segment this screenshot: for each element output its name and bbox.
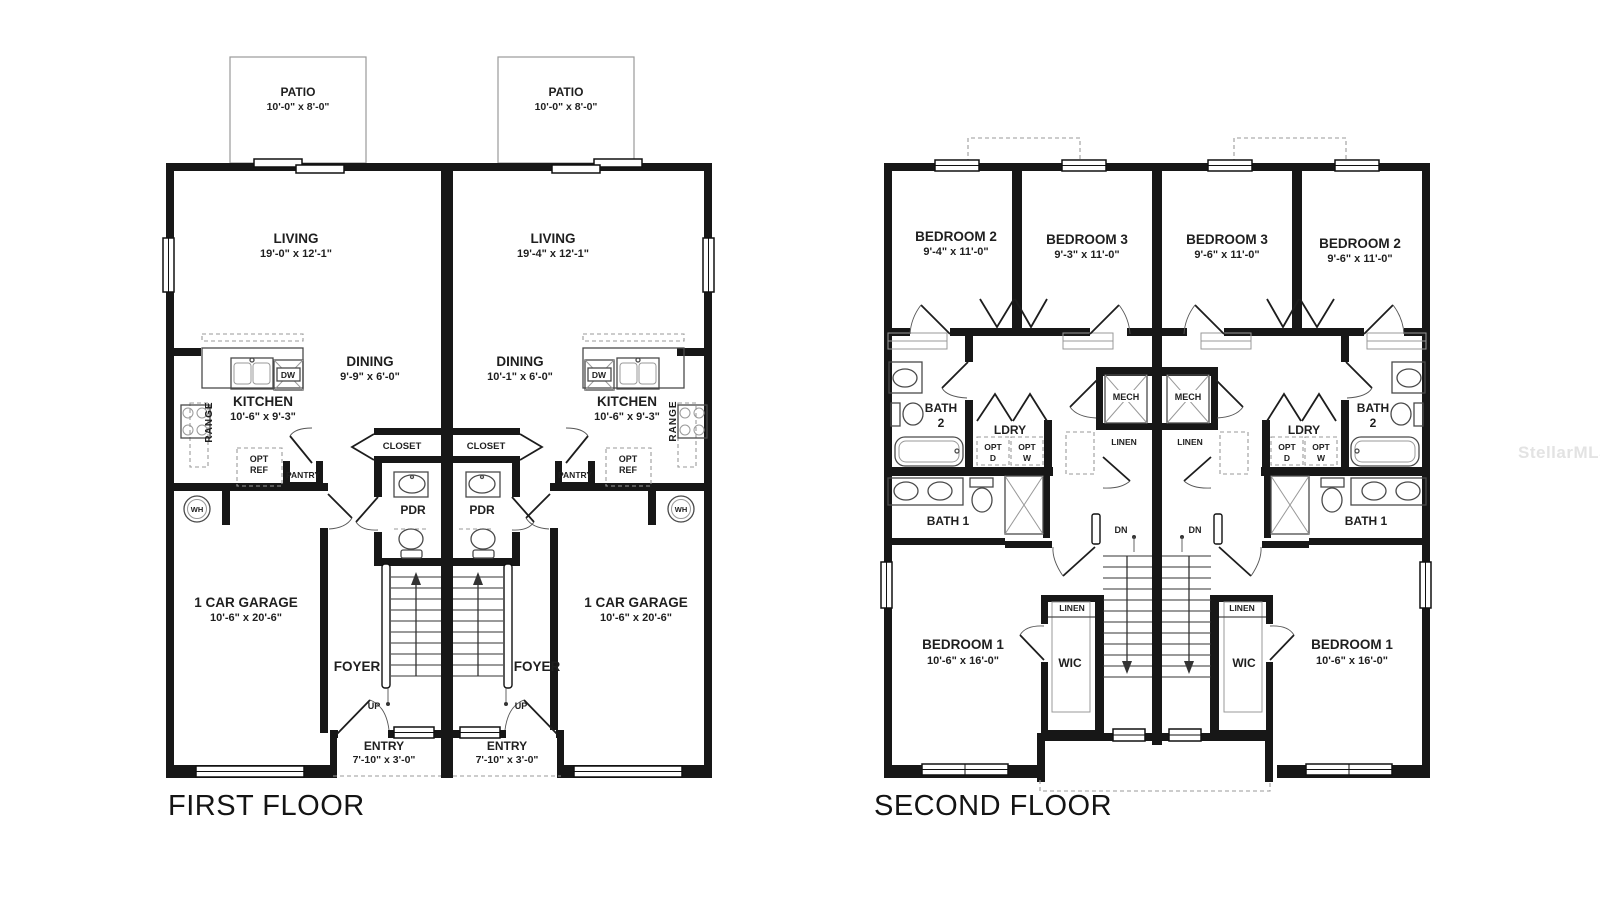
pantry-label: PANTRY <box>558 470 592 480</box>
linen-label: LINEN <box>1177 437 1203 447</box>
faucet-icon <box>1355 449 1359 453</box>
lav-sink <box>928 482 952 500</box>
door-leaf <box>566 436 588 463</box>
door-swing <box>356 522 378 530</box>
range-label: RANGE <box>668 400 679 441</box>
burner-icon <box>680 425 690 435</box>
bedroom3-window <box>1208 160 1252 171</box>
bedroom2-dims: 9'-6" x 11'-0" <box>1327 253 1392 265</box>
toilet <box>399 529 423 549</box>
toilet-tank <box>1414 403 1423 426</box>
patio-slider-right <box>594 159 642 167</box>
bedroom1-dims: 10'-6" x 16'-0" <box>927 655 999 667</box>
toilet <box>471 529 495 549</box>
door-swing <box>329 518 352 529</box>
door-swing <box>290 428 312 436</box>
up-arrow-head <box>411 572 421 585</box>
doors-first-floor <box>290 428 588 734</box>
toilet <box>903 403 923 425</box>
roof-outline <box>968 138 1346 163</box>
laundry-bifold <box>1267 394 1336 421</box>
opt-d-label: OPT <box>984 442 1002 452</box>
garage-dims: 10'-6" x 20'-6" <box>600 612 672 624</box>
opt-d-label: OPT <box>1278 442 1296 452</box>
opt-ref-label: REF <box>250 465 269 475</box>
linen-label: LINEN <box>1059 603 1085 613</box>
door-swing <box>526 518 549 529</box>
garage-label: 1 CAR GARAGE <box>194 595 298 610</box>
patio-slider-right-2 <box>552 165 600 173</box>
garage-door-left <box>196 766 304 777</box>
door-swing <box>566 428 588 436</box>
toilet-tank <box>891 403 900 426</box>
patio-dims: 10'-0" x 8'-0" <box>535 101 598 113</box>
opt-w-label: W <box>1023 453 1032 463</box>
sink-basin <box>234 363 251 384</box>
entry-dims: 7'-10" x 3'-0" <box>353 754 416 766</box>
up-label: UP <box>368 701 381 711</box>
porch-window <box>1113 729 1145 741</box>
sink-basin <box>620 363 637 384</box>
toilet <box>1322 488 1342 512</box>
bedroom3-dims: 9'-3" x 11'-0" <box>1054 249 1119 261</box>
bedroom3-label: BEDROOM 3 <box>1186 232 1268 247</box>
entry-door-leaf <box>337 700 370 734</box>
dn-arrow-head <box>1184 661 1194 674</box>
bedroom2-label: BEDROOM 2 <box>1319 236 1401 251</box>
bedroom1-window <box>922 764 1008 775</box>
faucet-icon <box>481 476 484 479</box>
kitchen-label: KITCHEN <box>233 394 293 409</box>
wic-label: WIC <box>1232 656 1256 670</box>
dining-label: DINING <box>496 354 543 369</box>
bathtub-inner <box>899 441 959 462</box>
kitchen-right <box>583 334 707 486</box>
kitchen-label: KITCHEN <box>597 394 657 409</box>
bedroom2-window <box>935 160 979 171</box>
toilet-base <box>401 550 422 558</box>
lav-sink <box>1362 482 1386 500</box>
dn-label: DN <box>1189 525 1202 535</box>
dining-dims: 9'-9" x 6'-0" <box>340 371 400 383</box>
bedroom3-label: BEDROOM 3 <box>1046 232 1128 247</box>
door-leaf <box>356 497 378 522</box>
burner-icon <box>183 425 193 435</box>
opt-w-label: OPT <box>1018 442 1036 452</box>
opt-w-label: OPT <box>1312 442 1330 452</box>
first-floor-plan: PATIO 10'-0" x 8'-0" PATIO 10'-0" x 8'-0… <box>163 57 714 778</box>
linen-label: LINEN <box>1111 437 1137 447</box>
dining-label: DINING <box>346 354 393 369</box>
bedroom1-side-window <box>881 562 892 608</box>
toilet-base <box>473 550 494 558</box>
bedroom3-dims: 9'-6" x 11'-0" <box>1194 249 1259 261</box>
bathtub-inner <box>1355 441 1415 462</box>
floor-plan-drawing: PATIO 10'-0" x 8'-0" PATIO 10'-0" x 8'-0… <box>0 0 1600 899</box>
first-floor-title: FIRST FLOOR <box>168 790 365 822</box>
mech-label: MECH <box>1175 392 1202 402</box>
pdr-label: PDR <box>469 503 495 517</box>
watermark: StellarMLS <box>1518 443 1600 462</box>
foyer-label: FOYER <box>514 659 561 674</box>
mech-label: MECH <box>1113 392 1140 402</box>
bath1-label: BATH 1 <box>1345 514 1388 528</box>
entry-door-opening-left <box>338 730 388 738</box>
bath2-label: BATH <box>1357 401 1389 415</box>
garage-label: 1 CAR GARAGE <box>584 595 688 610</box>
dn-arrow-head <box>1122 661 1132 674</box>
shower-hatch <box>1271 476 1309 534</box>
foyer-window-left <box>394 727 434 738</box>
pdr-label: PDR <box>400 503 426 517</box>
living-dims: 19'-4" x 12'-1" <box>517 248 589 260</box>
burner-icon <box>183 408 193 418</box>
lav-sink <box>1397 369 1421 387</box>
lav-sink <box>893 369 917 387</box>
up-arrow-head <box>473 572 483 585</box>
bath2-label: 2 <box>938 416 945 430</box>
attic-access <box>1220 432 1248 474</box>
door-leaf <box>526 494 550 518</box>
dn-label: DN <box>1115 525 1128 535</box>
toilet <box>972 488 992 512</box>
range-label: RANGE <box>204 401 215 442</box>
bath2-label: BATH <box>925 401 957 415</box>
dw-label: DW <box>281 370 296 380</box>
foyer-label: FOYER <box>334 659 381 674</box>
closet-bifold <box>520 434 542 460</box>
dw-label: DW <box>592 370 607 380</box>
floor-plan-sheet: PATIO 10'-0" x 8'-0" PATIO 10'-0" x 8'-0… <box>0 0 1600 899</box>
opt-d-label: D <box>1284 453 1290 463</box>
bedroom1-window <box>1306 764 1392 775</box>
opt-ref-label: OPT <box>250 454 269 464</box>
entry-label: ENTRY <box>487 739 527 753</box>
attic-access <box>1066 432 1094 474</box>
kitchen-dims: 10'-6" x 9'-3" <box>230 411 296 423</box>
up-leader-dot <box>386 702 390 706</box>
toilet-tank <box>1321 478 1344 487</box>
toilet <box>1391 403 1411 425</box>
bedroom1-label: BEDROOM 1 <box>922 637 1004 652</box>
stair-rail <box>504 564 512 688</box>
foyer-window-right <box>460 727 500 738</box>
bedroom2-dims: 9'-4" x 11'-0" <box>923 246 988 258</box>
bath2-label: 2 <box>1370 416 1377 430</box>
closet-bifold <box>352 434 374 460</box>
door-leaf <box>512 497 534 522</box>
pantry-label: PANTRY <box>286 470 320 480</box>
shower-hatch <box>1005 476 1043 534</box>
faucet-icon <box>411 476 414 479</box>
sink-basin <box>253 363 270 384</box>
patio-dims: 10'-0" x 8'-0" <box>267 101 330 113</box>
kitchen-dims: 10'-6" x 9'-3" <box>594 411 660 423</box>
door-leaf <box>328 494 352 518</box>
bedroom1-dims: 10'-6" x 16'-0" <box>1316 655 1388 667</box>
closet-label: CLOSET <box>467 441 506 452</box>
porch-window <box>1169 729 1201 741</box>
wh-label: WH <box>191 505 204 514</box>
lav-sink <box>894 482 918 500</box>
living-window-left <box>163 238 174 292</box>
second-floor-title: SECOND FLOOR <box>874 790 1112 822</box>
stair-treads <box>1162 556 1211 677</box>
patio-label: PATIO <box>281 85 316 99</box>
living-label: LIVING <box>273 231 318 246</box>
closet-label: CLOSET <box>383 441 422 452</box>
living-window-right <box>703 238 714 292</box>
laundry-label: LDRY <box>994 423 1026 437</box>
dining-dims: 10'-1" x 6'-0" <box>487 371 553 383</box>
bedroom1-side-window <box>1420 562 1431 608</box>
faucet-icon <box>636 358 640 362</box>
opt-ref-label: OPT <box>619 454 638 464</box>
up-label: UP <box>515 701 528 711</box>
bedroom2-window <box>1335 160 1379 171</box>
up-leader-dot <box>504 702 508 706</box>
patio-slider-left <box>254 159 302 167</box>
patio-slider-left-2 <box>296 165 344 173</box>
second-floor-plan: BEDROOM 2 9'-4" x 11'-0" BEDROOM 3 9'-3"… <box>881 138 1431 791</box>
garage-door-right <box>574 766 682 777</box>
garage-dims: 10'-6" x 20'-6" <box>210 612 282 624</box>
sink-basin <box>639 363 656 384</box>
living-label: LIVING <box>530 231 575 246</box>
laundry-label: LDRY <box>1288 423 1320 437</box>
patio-label: PATIO <box>549 85 584 99</box>
toilet-tank <box>970 478 993 487</box>
lav-sink <box>399 475 425 493</box>
laundry-bifold <box>977 394 1047 421</box>
entry-label: ENTRY <box>364 739 404 753</box>
entry-dims: 7'-10" x 3'-0" <box>476 754 539 766</box>
lav-sink <box>1396 482 1420 500</box>
stair-newel <box>1214 514 1222 544</box>
opt-d-label: D <box>990 453 996 463</box>
faucet-icon <box>250 358 254 362</box>
wh-label: WH <box>675 505 688 514</box>
bedroom2-label: BEDROOM 2 <box>915 229 997 244</box>
lav-sink <box>469 475 495 493</box>
stair-newel <box>1092 514 1100 544</box>
stair-rail <box>382 564 390 688</box>
bedroom3-window <box>1062 160 1106 171</box>
bath1-label: BATH 1 <box>927 514 970 528</box>
living-dims: 19'-0" x 12'-1" <box>260 248 332 260</box>
faucet-icon <box>955 449 959 453</box>
opt-ref-label: REF <box>619 465 638 475</box>
wic-label: WIC <box>1058 656 1082 670</box>
linen-label: LINEN <box>1229 603 1255 613</box>
bedroom1-label: BEDROOM 1 <box>1311 637 1393 652</box>
entry-door-opening-right <box>506 730 556 738</box>
opt-w-label: W <box>1317 453 1326 463</box>
door-leaf <box>290 436 312 463</box>
burner-icon <box>680 408 690 418</box>
